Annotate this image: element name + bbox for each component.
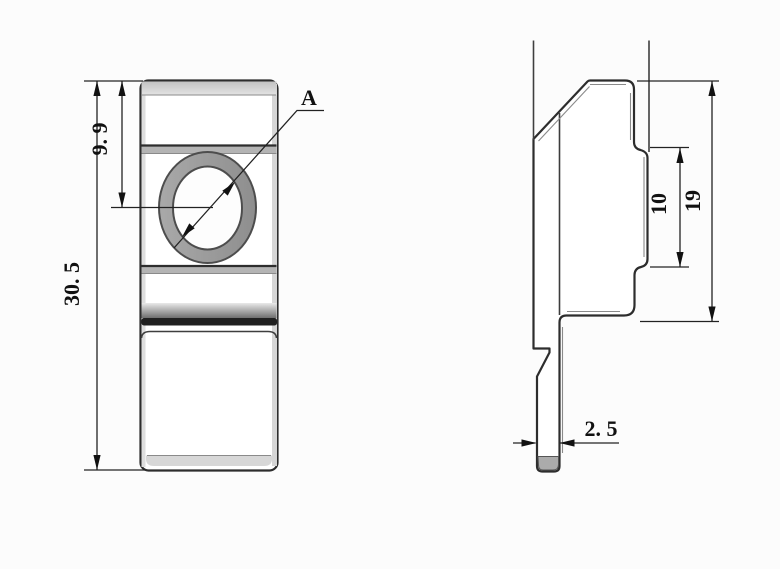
technical-drawing: 9. 9 30. 5 A: [0, 0, 780, 569]
hole-label-a: A: [301, 85, 317, 110]
front-dark-band: [142, 318, 278, 326]
front-bottom-shade: [146, 456, 272, 467]
arrow-19-bottom: [708, 307, 715, 322]
side-view: [534, 41, 650, 472]
arrow-10-top: [676, 148, 683, 163]
arrow-19-top: [708, 81, 715, 96]
front-left-edge-shade: [142, 84, 146, 467]
dim-label-2-5: 2. 5: [585, 416, 618, 441]
arrow-9-9-bottom: [118, 193, 125, 208]
dim-label-19: 19: [680, 190, 705, 212]
arrow-2-5-right: [560, 439, 575, 446]
dim-label-10: 10: [646, 193, 671, 215]
side-strip-bottom-cap: [538, 457, 559, 471]
arrow-10-bottom: [676, 252, 683, 267]
dim-label-30-5: 30. 5: [59, 262, 84, 306]
dim-label-9-9: 9. 9: [87, 123, 112, 156]
front-band-3-gradient: [142, 303, 277, 318]
arrow-30-5-bottom: [93, 455, 100, 470]
arrow-9-9-top: [118, 81, 125, 96]
front-view: [141, 81, 278, 471]
front-band-2: [142, 266, 277, 274]
front-top-band: [142, 82, 277, 96]
drawing-canvas: 9. 9 30. 5 A: [0, 0, 780, 569]
front-right-edge-shade: [272, 84, 277, 466]
front-outline: [141, 81, 278, 471]
arrow-30-5-top: [93, 81, 100, 96]
arrow-2-5-left: [522, 439, 537, 446]
